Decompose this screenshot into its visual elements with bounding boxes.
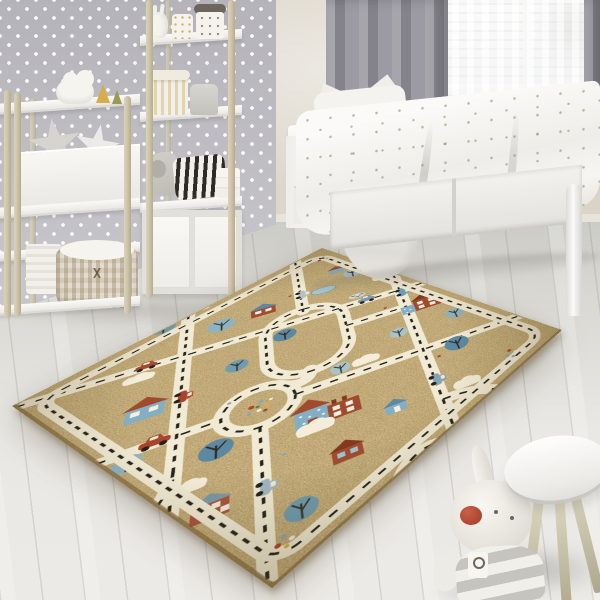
cabinet-door xyxy=(147,216,190,288)
gold-tree-ornament xyxy=(96,84,110,103)
cloud-cushion-bump xyxy=(76,70,94,88)
shelf-pole xyxy=(228,0,235,298)
nursery-room-photo xyxy=(0,0,600,600)
tree-ornament xyxy=(112,90,122,104)
dragonfly-motif xyxy=(90,268,104,278)
bunny-label-patch xyxy=(468,552,488,578)
drawer-seam xyxy=(452,178,456,236)
grey-tub xyxy=(190,84,218,115)
bunny-eye xyxy=(510,516,514,520)
dotted-jar-large xyxy=(196,12,224,39)
shelf-pole xyxy=(124,96,131,314)
figurine-ear xyxy=(153,5,157,15)
bunny-eye xyxy=(494,510,498,514)
basket-cloth xyxy=(60,240,134,260)
dotted-jar-small xyxy=(172,14,193,39)
shelf-pole xyxy=(146,0,153,298)
striped-box-lid xyxy=(148,70,190,80)
shelf-pole xyxy=(4,90,11,318)
shelf-pole xyxy=(14,92,21,316)
bunny-nose xyxy=(460,506,482,525)
label-glyph xyxy=(473,557,485,569)
bed-post xyxy=(566,184,582,316)
striped-round-box xyxy=(150,74,188,115)
